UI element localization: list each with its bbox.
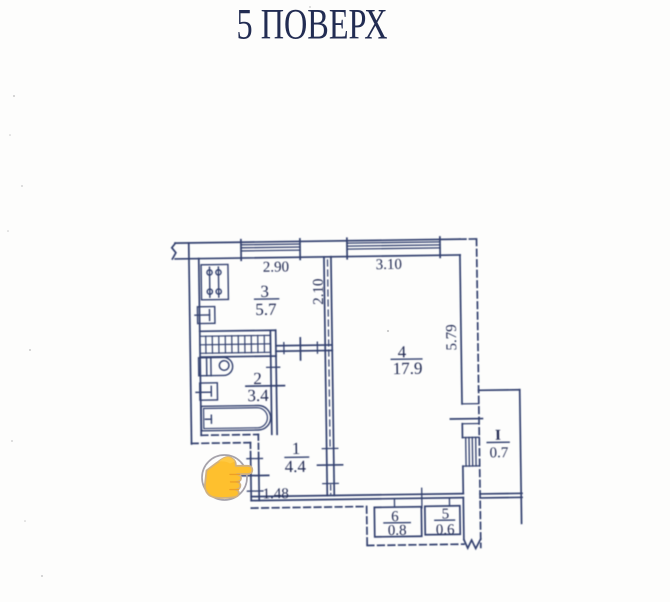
svg-text:I: I [495,428,501,444]
svg-text:3: 3 [260,282,269,301]
svg-text:5.7: 5.7 [255,300,277,319]
svg-text:17.9: 17.9 [393,359,423,378]
svg-text:0.6: 0.6 [436,522,455,538]
svg-text:0.8: 0.8 [388,523,407,539]
svg-text:3.4: 3.4 [247,386,269,405]
svg-text:2.10: 2.10 [311,278,327,304]
svg-text:2.90: 2.90 [263,259,289,275]
svg-text:5 ПОВЕРХ: 5 ПОВЕРХ [237,2,388,49]
svg-text:1.48: 1.48 [262,486,288,502]
svg-text:1: 1 [292,439,301,458]
svg-text:3.10: 3.10 [376,257,402,273]
svg-text:4.4: 4.4 [285,457,307,476]
svg-text:5.79: 5.79 [444,324,460,350]
svg-text:0.7: 0.7 [489,445,508,461]
